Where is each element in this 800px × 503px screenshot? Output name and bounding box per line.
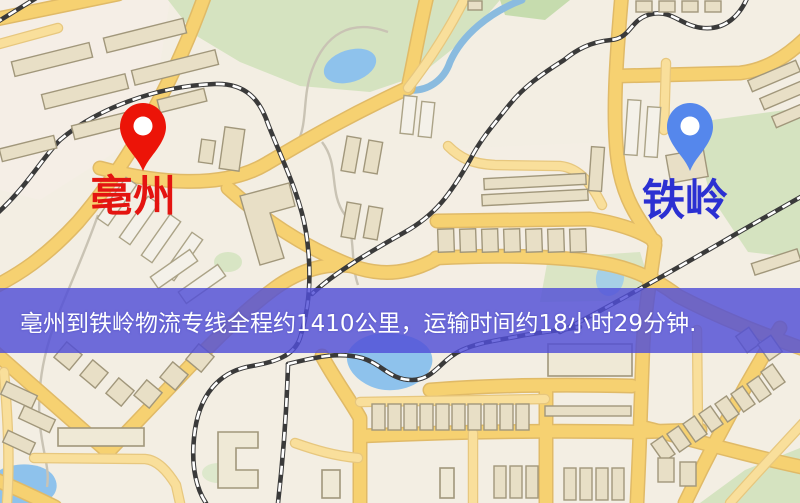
origin-city-label: 亳州 — [90, 176, 176, 219]
route-info-banner: 亳州到铁岭物流专线全程约1410公里，运输时间约18小时29分钟. — [0, 288, 800, 353]
destination-city-label: 铁岭 — [642, 180, 728, 223]
map-background[interactable] — [0, 0, 800, 503]
map-view: 亳州 铁岭 亳州到铁岭物流专线全程约1410公里，运输时间约18小时29分钟. — [0, 0, 800, 503]
destination-city-label-text: 铁岭 — [642, 176, 728, 226]
destination-pin-icon[interactable] — [663, 101, 717, 173]
destination-pin-hole — [681, 117, 700, 136]
origin-pin-shape — [120, 103, 166, 171]
origin-pin-icon[interactable] — [116, 101, 170, 173]
origin-city-label-text: 亳州 — [90, 172, 176, 222]
destination-pin-shape — [667, 103, 713, 171]
origin-pin-hole — [134, 117, 153, 136]
route-info-text: 亳州到铁岭物流专线全程约1410公里，运输时间约18小时29分钟. — [0, 304, 696, 338]
